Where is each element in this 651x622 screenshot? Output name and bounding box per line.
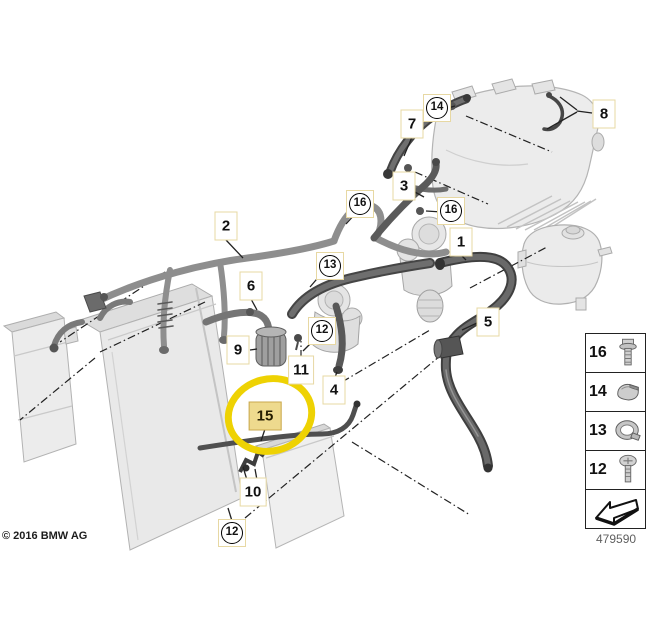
callout-ring: 16 <box>349 193 371 215</box>
callout-1[interactable]: 1 <box>450 228 473 257</box>
callout-10[interactable]: 10 <box>240 478 267 507</box>
callout-3[interactable]: 3 <box>393 172 416 201</box>
parts-diagram-page: 269114151012131216163714815 16 14 <box>0 0 651 622</box>
callout-11[interactable]: 11 <box>288 356 314 385</box>
callout-2[interactable]: 2 <box>215 212 238 241</box>
callout-ring: 13 <box>319 255 341 277</box>
callout-4[interactable]: 4 <box>323 376 346 405</box>
callout-13[interactable]: 13 <box>316 252 344 280</box>
callout-14[interactable]: 14 <box>423 94 451 122</box>
callout-ring: 16 <box>440 200 462 222</box>
callout-5[interactable]: 5 <box>477 308 500 337</box>
callout-ring: 14 <box>426 97 448 119</box>
callout-8[interactable]: 8 <box>593 100 616 129</box>
callout-12-middle[interactable]: 12 <box>308 317 336 345</box>
callout-ring: 12 <box>221 522 243 544</box>
callout-layer: 269114151012131216163714815 <box>0 0 651 622</box>
callout-7[interactable]: 7 <box>401 110 424 139</box>
callout-6[interactable]: 6 <box>240 272 263 301</box>
callout-12-bottom[interactable]: 12 <box>218 519 246 547</box>
callout-15[interactable]: 15 <box>249 402 282 431</box>
callout-16-left[interactable]: 16 <box>346 190 374 218</box>
callout-16-right[interactable]: 16 <box>437 197 465 225</box>
callout-ring: 12 <box>311 320 333 342</box>
callout-9[interactable]: 9 <box>227 336 250 365</box>
